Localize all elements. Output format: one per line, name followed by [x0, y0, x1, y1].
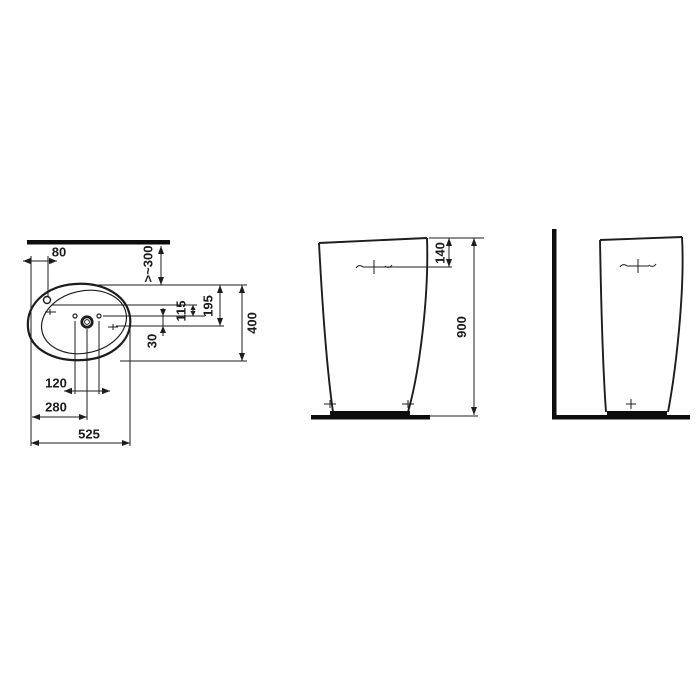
mounting-marks-front [324, 400, 414, 408]
dim-back-to-drain: 195 [201, 285, 221, 326]
dim-label: 400 [245, 312, 260, 334]
dim-label: 280 [45, 400, 67, 415]
basin-foot-side [607, 411, 667, 415]
faucet-marker-side [620, 259, 656, 273]
dim-overall-depth: 400 [242, 285, 260, 361]
dim-overall-width: 525 [31, 427, 130, 444]
basin-foot-front [330, 411, 410, 415]
mounting-mark-side [626, 399, 636, 409]
dim-wall-clearance: >~300 [141, 246, 162, 285]
basin-outline-plan [28, 284, 130, 360]
fixing-hole-right [97, 314, 101, 318]
floor-line-front [311, 415, 430, 420]
front-view: 140 900 [311, 238, 484, 420]
tap-center-mark [45, 309, 56, 315]
dim-label: 80 [52, 245, 66, 260]
dim-holes-spacing: 120 [45, 376, 110, 395]
side-view [552, 229, 690, 420]
dim-label: 140 [433, 242, 448, 264]
dim-label: 900 [454, 316, 469, 338]
dim-tap-offset: 80 [23, 245, 66, 265]
drain-hole [82, 317, 92, 327]
basin-outline-side [600, 237, 683, 412]
dim-label: 195 [201, 295, 216, 317]
basin-rim-plan [35, 282, 133, 362]
floor-line-side [552, 415, 690, 420]
technical-drawing-page: >~300 80 195 115 30 400 [0, 0, 700, 700]
dim-label: 30 [145, 334, 160, 348]
basin-outline-front [319, 238, 427, 412]
reference-cross-plan [108, 324, 118, 330]
washbasin-drawing: >~300 80 195 115 30 400 [0, 0, 700, 700]
dim-edge-to-drain: 280 [32, 400, 87, 418]
dim-label: 115 [174, 301, 189, 322]
wall-line-side [552, 229, 557, 419]
dim-tap-from-top: 140 [433, 238, 450, 267]
dim-label: 120 [45, 376, 67, 391]
dim-overall-height: 900 [454, 238, 474, 415]
dim-label: >~300 [141, 246, 156, 283]
dim-label: 525 [78, 427, 100, 442]
tap-hole [44, 297, 51, 304]
fixing-hole-left [73, 314, 77, 318]
plan-view: >~300 80 195 115 30 400 [23, 240, 260, 446]
dim-tap-to-drain: 115 [174, 301, 196, 322]
wall-line-plan [27, 240, 170, 245]
dim-holes-to-drain: 30 [145, 308, 167, 348]
